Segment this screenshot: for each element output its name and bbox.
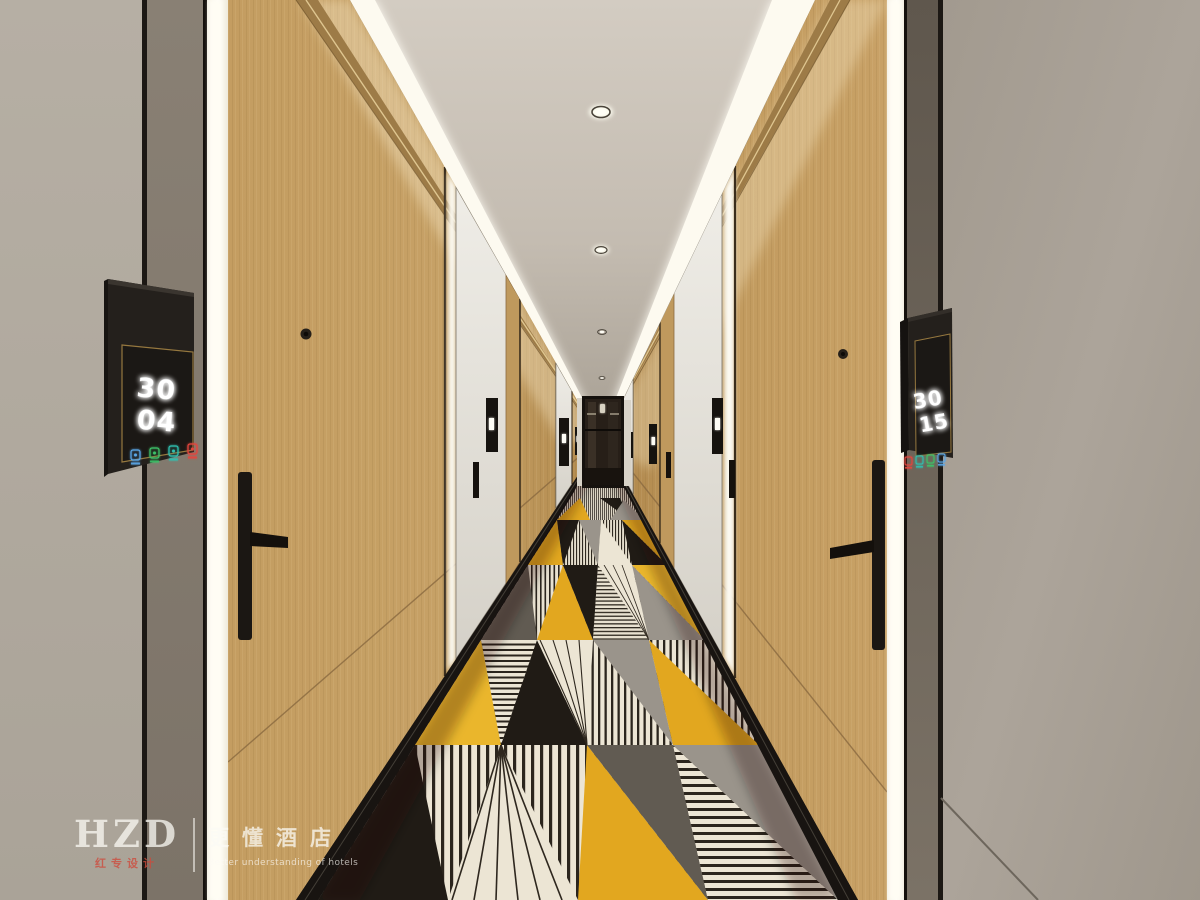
right-door3-handle xyxy=(666,452,671,478)
right-room-sign: 30 15 xyxy=(900,308,953,469)
right-door1-frame-light xyxy=(724,166,735,678)
left-door2-handle xyxy=(473,462,479,498)
left-sign-number-top: 30 xyxy=(135,372,177,406)
right-sign-number-bottom: 15 xyxy=(917,409,951,438)
end-doorway-lit-sign xyxy=(600,404,605,413)
left-sign2-lit-number xyxy=(489,418,494,430)
corridor-end-doorway xyxy=(577,396,631,488)
left-room-sign: 30 04 xyxy=(104,279,197,477)
right-sign2-lit-number xyxy=(715,418,720,430)
right-door2-handle xyxy=(729,460,735,498)
left-door1-frame-light xyxy=(448,172,456,671)
left-sign-number-bottom: 04 xyxy=(135,405,177,439)
corridor-scene: 30 04 30 15 xyxy=(0,0,1200,900)
left-panel1-wood-strip xyxy=(506,275,520,584)
corridor-render: 30 04 30 15 xyxy=(0,0,1200,900)
right-panel1-wood-strip xyxy=(660,293,674,568)
